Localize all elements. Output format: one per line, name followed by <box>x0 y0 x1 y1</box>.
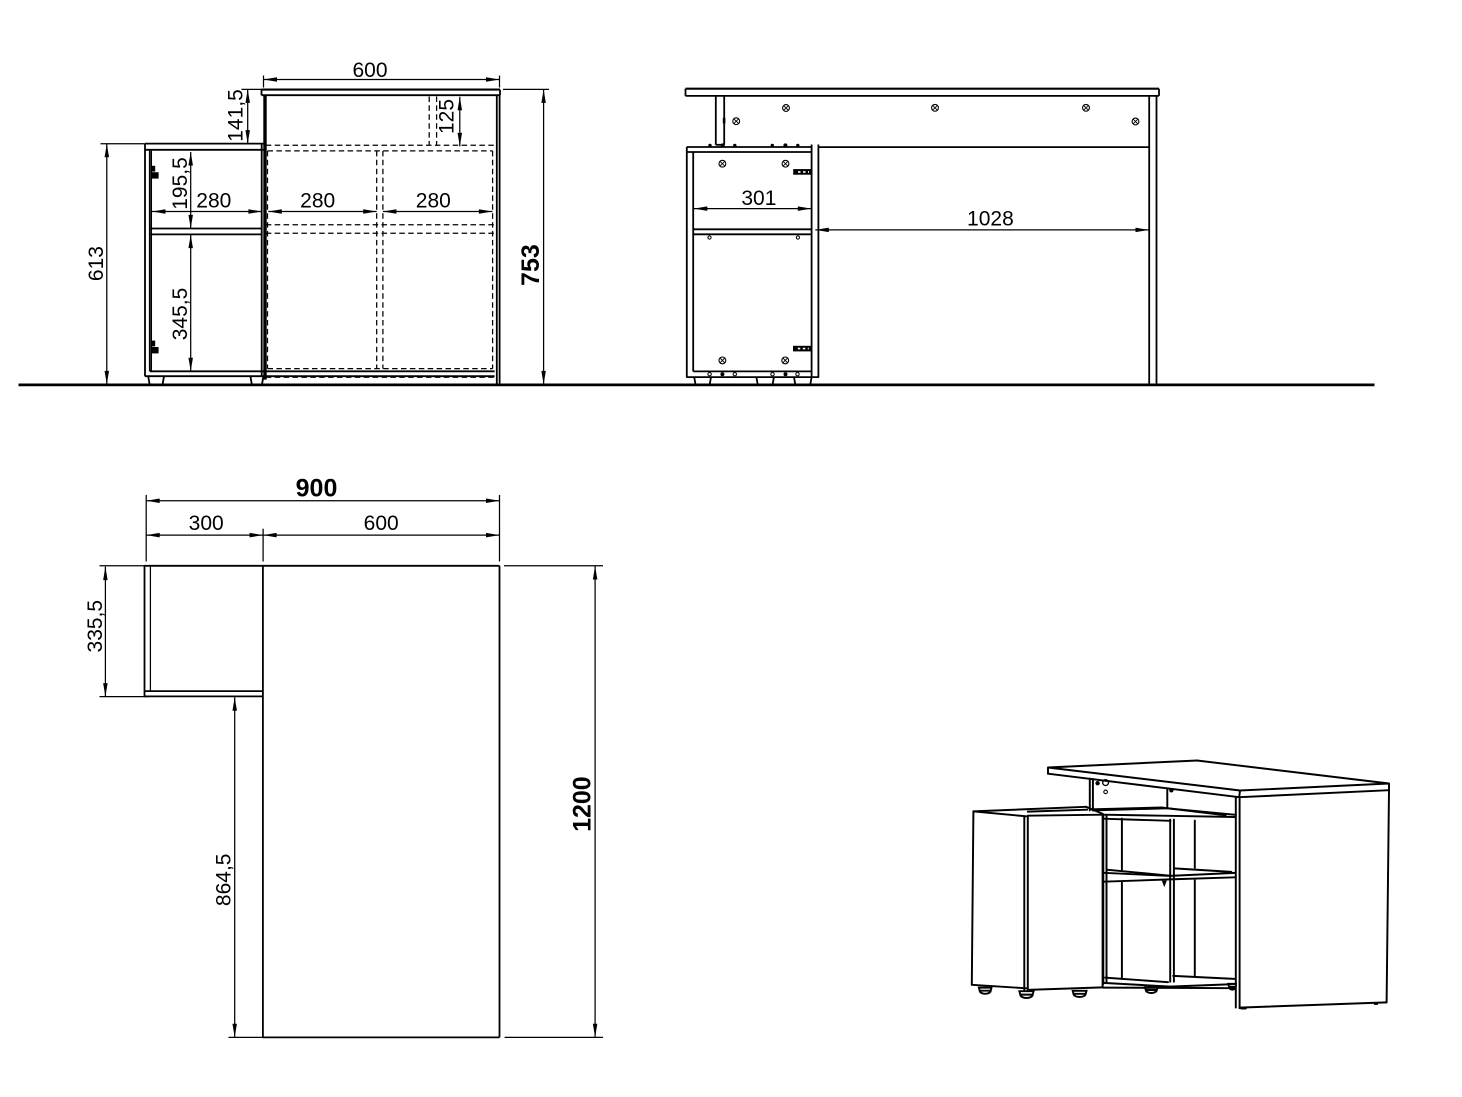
svg-text:300: 300 <box>189 512 224 535</box>
svg-text:125: 125 <box>436 99 459 134</box>
svg-text:335,5: 335,5 <box>84 600 107 653</box>
svg-text:301: 301 <box>741 187 776 210</box>
svg-text:613: 613 <box>85 246 108 281</box>
svg-text:280: 280 <box>416 190 451 213</box>
svg-text:864,5: 864,5 <box>213 854 236 907</box>
svg-text:753: 753 <box>517 244 545 286</box>
svg-text:900: 900 <box>296 474 338 502</box>
svg-text:280: 280 <box>196 190 231 213</box>
svg-text:280: 280 <box>300 190 335 213</box>
svg-text:1028: 1028 <box>967 208 1014 231</box>
svg-text:141,5: 141,5 <box>225 89 248 142</box>
svg-text:1200: 1200 <box>569 776 597 832</box>
svg-text:600: 600 <box>352 59 387 82</box>
svg-text:195,5: 195,5 <box>169 157 192 210</box>
svg-text:600: 600 <box>364 512 399 535</box>
svg-text:345,5: 345,5 <box>169 288 192 341</box>
